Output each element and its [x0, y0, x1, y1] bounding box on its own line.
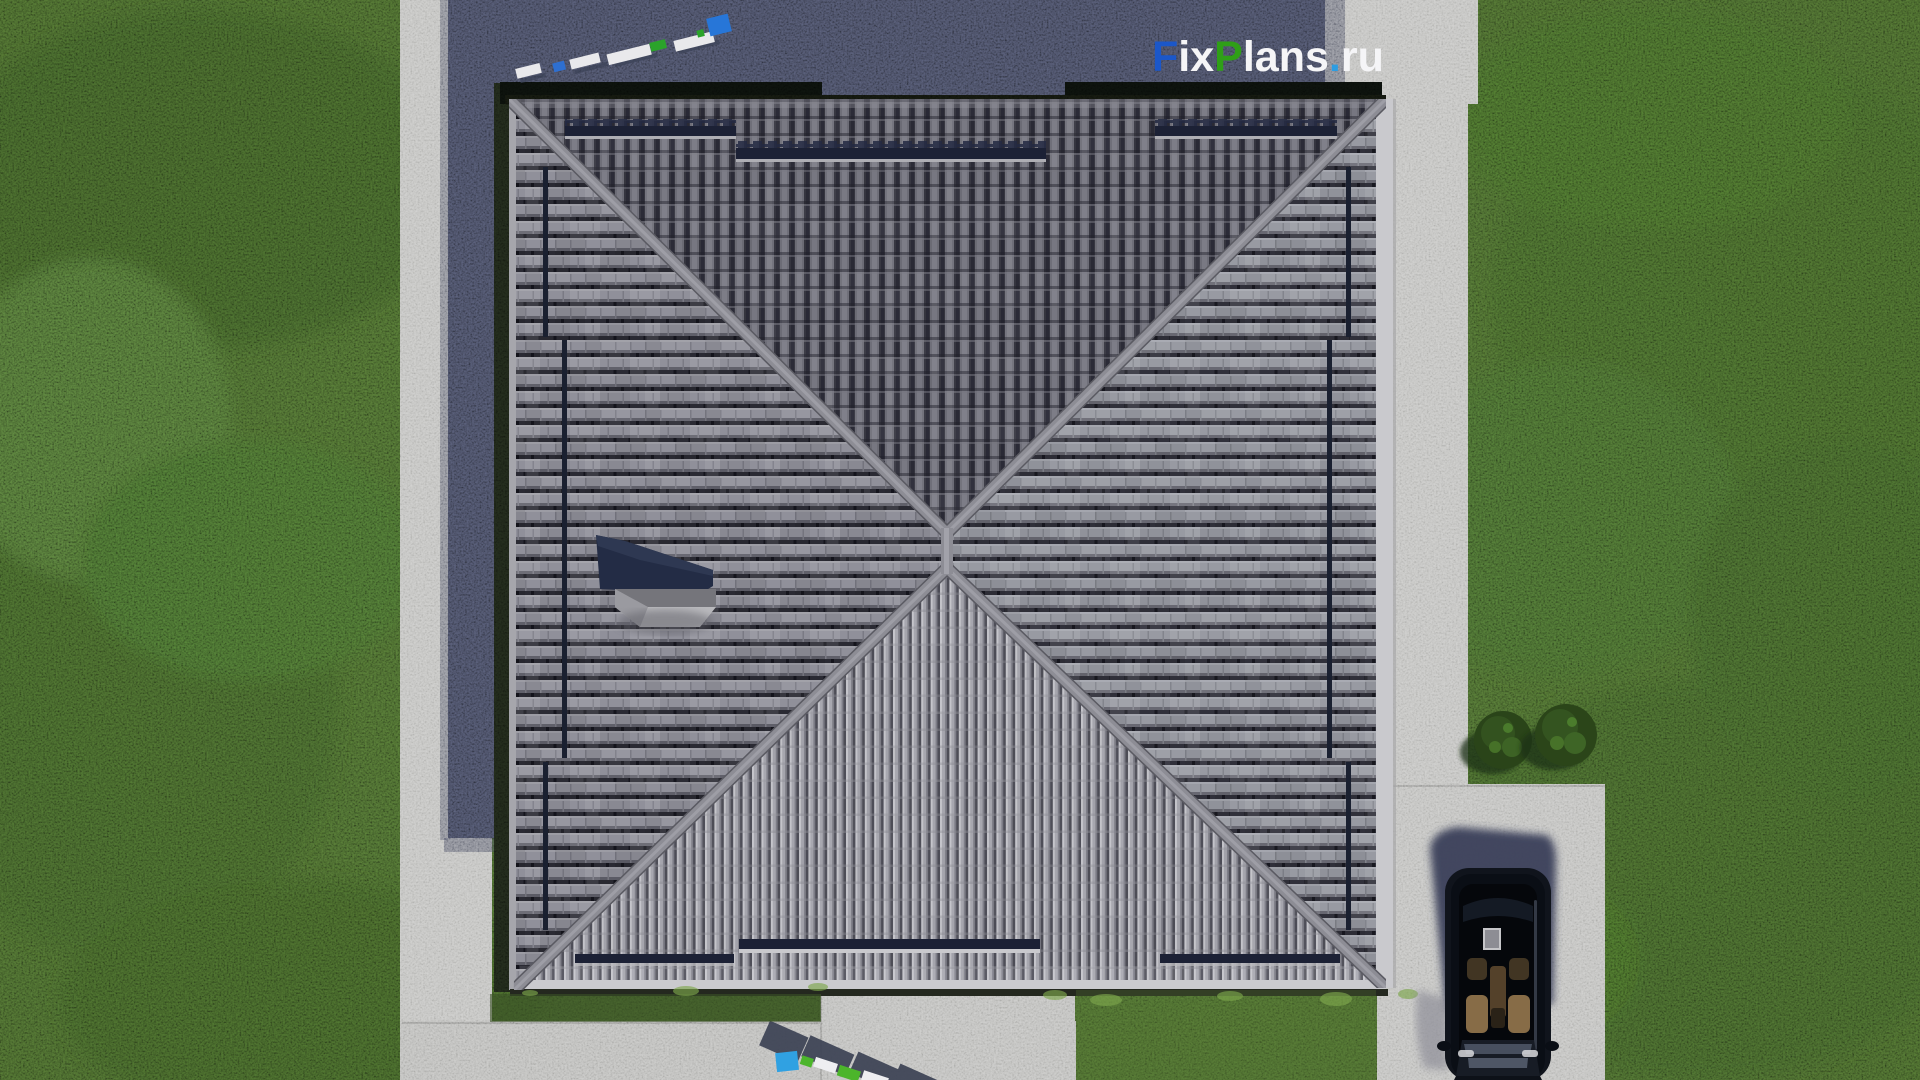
svg-text:FixPlans.ru: FixPlans.ru — [1152, 33, 1384, 81]
